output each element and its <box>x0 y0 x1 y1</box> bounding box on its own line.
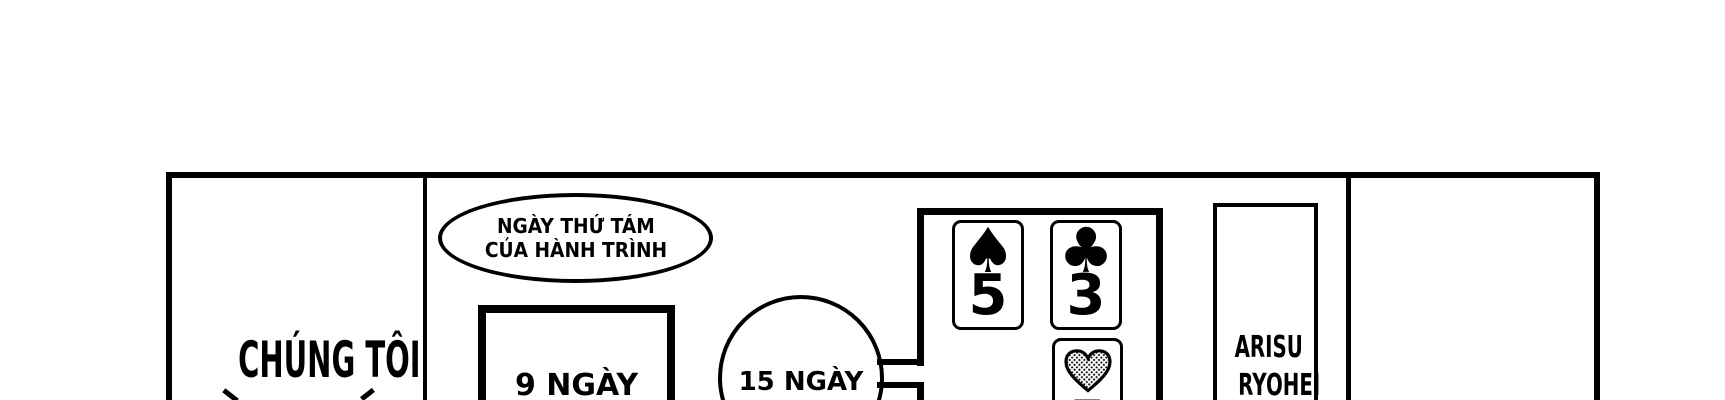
card-spade-5: ♠ 5 <box>952 220 1024 330</box>
cell-divider-right <box>1346 177 1351 400</box>
journey-bubble-line-2: CỦA HÀNH TRÌNH <box>484 238 666 262</box>
card-heart-clipped: 5 <box>1052 338 1123 400</box>
connector-stub-bottom <box>877 382 923 388</box>
name-box: ARISU RYOHEI <box>1213 203 1318 400</box>
left-cell-title-text: CHÚNG TÔI <box>238 334 421 386</box>
heart-card-rank-clipped: 5 <box>1055 394 1120 400</box>
border-gap-patch <box>914 366 928 382</box>
club-card-rank: 3 <box>1067 273 1106 319</box>
cell-divider-left <box>423 177 427 400</box>
heart-icon <box>1063 349 1113 393</box>
left-cell-title: CHÚNG TÔI <box>172 334 423 386</box>
name-line-2: RYOHEI <box>1217 367 1314 400</box>
name-line-1: ARISU <box>1217 329 1314 367</box>
card-club-3: ♣ 3 <box>1050 220 1122 330</box>
day15-label: 15 NGÀY <box>722 367 880 397</box>
spade-card-rank: 5 <box>969 273 1008 319</box>
journey-bubble-line-1: NGÀY THỨ TÁM <box>497 214 655 238</box>
journey-bubble: NGÀY THỨ TÁM CỦA HÀNH TRÌNH <box>438 193 713 283</box>
manga-page: CHÚNG TÔI NGÀY THỨ TÁM CỦA HÀNH TRÌNH 9 … <box>0 0 1725 400</box>
day9-label: 9 NGÀY <box>486 368 667 400</box>
connector-stub-top <box>877 359 923 365</box>
day9-box: 9 NGÀY <box>478 305 675 400</box>
